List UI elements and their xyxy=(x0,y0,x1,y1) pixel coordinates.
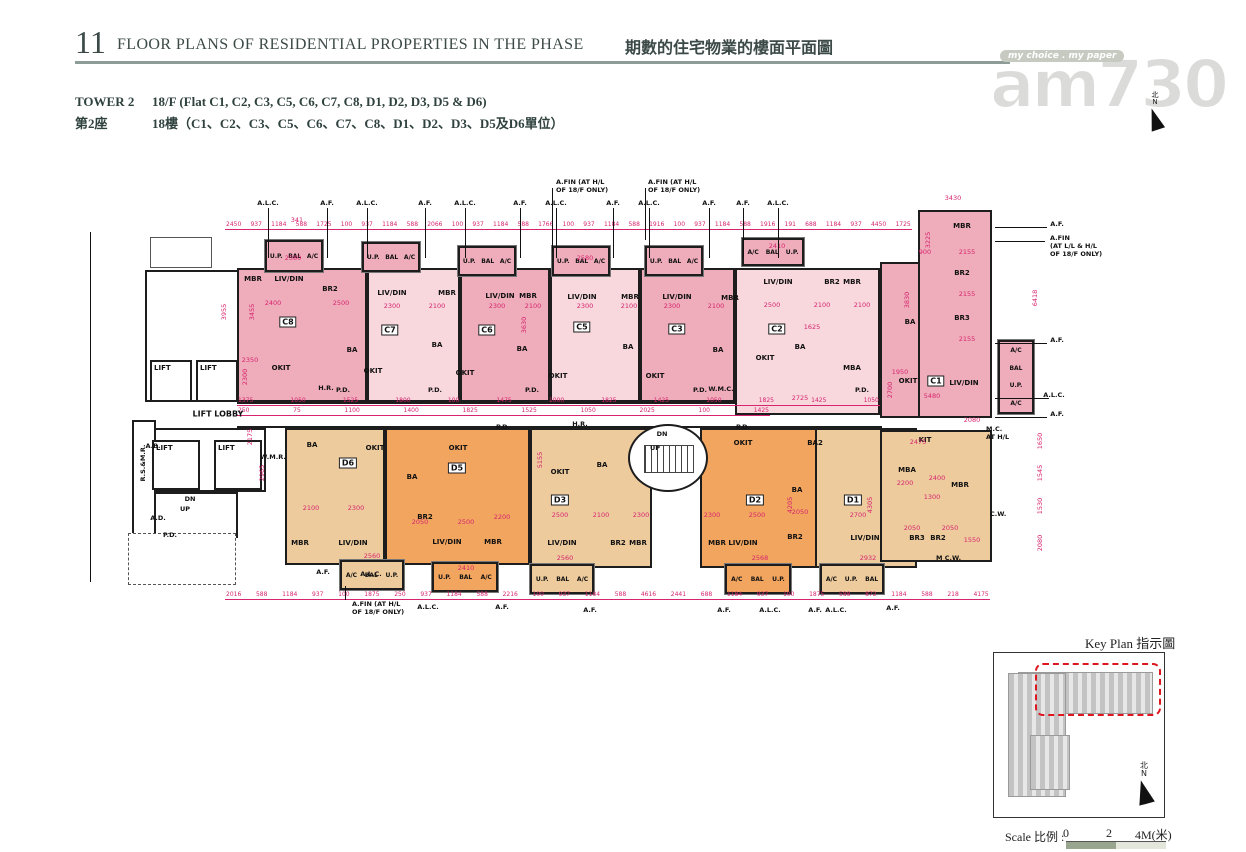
plan-label: R.S.&M.R. xyxy=(139,445,147,482)
leader-line xyxy=(345,586,346,600)
dimension-value: 588 xyxy=(838,591,851,599)
annotation-label: A.L.C. xyxy=(360,570,381,578)
room-label: BA xyxy=(597,461,608,469)
room-label: MBR xyxy=(951,481,969,489)
room-label: BR2 xyxy=(610,539,626,547)
dimension-value: 2050 xyxy=(904,524,921,532)
annotation-label: A.L.C. xyxy=(257,199,278,207)
dimension-value: 2300 xyxy=(241,369,249,386)
unit-badge-C1: C1 xyxy=(927,376,944,387)
room-label: BA xyxy=(347,346,358,354)
balcony-label: A/C xyxy=(687,258,698,265)
dimension-value: 4450 xyxy=(870,221,887,229)
balcony-box: U.P.BALA/C xyxy=(362,242,420,272)
balcony-label: U.P. xyxy=(845,576,858,583)
dimension-value: 1050 xyxy=(580,407,597,415)
dimension-value: 2560 xyxy=(557,554,574,562)
annotation-leader-line xyxy=(268,208,269,258)
room-label: BA2 xyxy=(807,439,823,447)
room-label: BR2 xyxy=(954,269,970,277)
dimension-value: 1425 xyxy=(753,407,770,415)
dimension-value: 2216 xyxy=(502,591,519,599)
dimension-value: 100 xyxy=(532,591,545,599)
plan-label: W.M.C. xyxy=(708,385,733,393)
room-label: OKIT xyxy=(734,439,753,447)
room-label: MBR xyxy=(953,222,971,230)
dimension-value: 1825 xyxy=(462,407,479,415)
callout-note: C.W. xyxy=(990,510,1006,518)
dimension-value: 341 xyxy=(291,216,303,224)
annotation-label: A.L.C. xyxy=(356,199,377,207)
dimension-value: 1825 xyxy=(600,397,617,405)
dimension-value: 2100 xyxy=(593,511,610,519)
lift-shaft: LIFT xyxy=(196,360,238,402)
plan-label: P.D. xyxy=(855,386,869,394)
room-label: LIV/DIN xyxy=(763,278,792,286)
plan-label: P.D. xyxy=(163,531,177,539)
plan-label: P.D. xyxy=(525,386,539,394)
leader-line xyxy=(995,241,1045,242)
plan-label: P.D. xyxy=(693,386,707,394)
unit-C8 xyxy=(237,268,367,402)
balcony-box: U.P.BALA/C xyxy=(645,246,703,276)
annotation-label: A.F. xyxy=(808,606,822,614)
dimension-value: 4616 xyxy=(640,591,657,599)
room-label: MBR xyxy=(708,539,726,547)
dimension-value: 1725 xyxy=(315,221,332,229)
plan-label: A.D. xyxy=(150,514,166,522)
dimension-value: 2441 xyxy=(670,591,687,599)
room-label: OKIT xyxy=(551,468,570,476)
dimension-value: 1875 xyxy=(808,591,825,599)
dimension-value: 100 xyxy=(562,221,575,229)
room-label: MBR xyxy=(621,293,639,301)
plan-label: P.D. xyxy=(336,386,350,394)
balcony-label: A/C xyxy=(826,576,837,583)
dimension-value: 1525 xyxy=(521,407,538,415)
dimension-value: 1475 xyxy=(495,397,512,405)
dimension-value: 2450 xyxy=(225,221,242,229)
dimension-value: 2080 xyxy=(1036,535,1044,552)
room-label: OKIT xyxy=(456,369,475,377)
balcony-box: A/CBALU.P.A/C xyxy=(998,340,1034,414)
dimension-value: 1530 xyxy=(1036,498,1044,515)
dimension-value: 937 xyxy=(756,591,769,599)
unit-badge-C6: C6 xyxy=(478,325,495,336)
dimension-value: 2300 xyxy=(704,511,721,519)
room-label: BR2 xyxy=(322,285,338,293)
dimension-value: 191 xyxy=(784,221,797,229)
balcony-label: A/C xyxy=(577,576,588,583)
dimension-value: 588 xyxy=(406,221,419,229)
dimension-value: 2350 xyxy=(242,356,259,364)
dimension-value: 3630 xyxy=(520,317,528,334)
dimension-value: 1650 xyxy=(1036,433,1044,450)
balcony-label: A/C xyxy=(481,574,492,581)
dimension-value: 3455 xyxy=(248,304,256,321)
leader-line xyxy=(645,188,646,240)
plan-label: P.D. xyxy=(496,423,510,431)
dimension-value: 4205 xyxy=(786,497,794,514)
dimension-value: 2200 xyxy=(494,513,511,521)
dimension-value: 2155 xyxy=(959,290,976,298)
room-label: MBR xyxy=(484,538,502,546)
dimension-value: 2175 xyxy=(246,429,254,446)
dimension-value: 2400 xyxy=(929,474,946,482)
room-label: MBR xyxy=(438,289,456,297)
dimension-value: 100 xyxy=(673,221,686,229)
annotation-label: A.F. xyxy=(316,568,330,576)
room-label: OKIT xyxy=(756,354,775,362)
annotation-label: A.F. xyxy=(513,199,527,207)
dimension-value: 937 xyxy=(849,221,862,229)
balcony-label: A/C xyxy=(1010,347,1021,354)
balcony-label: BAL xyxy=(751,576,764,583)
dimension-value: 250 xyxy=(393,591,406,599)
dimension-value: 2300 xyxy=(577,302,594,310)
leader-line xyxy=(995,343,1047,344)
stair-core xyxy=(628,424,708,492)
dimension-value: 937 xyxy=(693,221,706,229)
dimension-value: 2500 xyxy=(333,299,350,307)
room-label: MBR xyxy=(629,539,647,547)
dimension-value: 588 xyxy=(475,591,488,599)
dimension-value: 1184 xyxy=(714,221,731,229)
dimension-value: 2200 xyxy=(897,479,914,487)
dimension-value: 2700 xyxy=(850,511,867,519)
balcony-label: U.P. xyxy=(772,576,785,583)
balcony-label: U.P. xyxy=(385,572,398,579)
dimension-value: 75 xyxy=(292,407,302,415)
dimension-value: 688 xyxy=(700,591,713,599)
dimension-value: 1550 xyxy=(964,536,981,544)
dimension-value: 2155 xyxy=(959,248,976,256)
key-plan-footprint xyxy=(1030,735,1070,790)
annotation-label: A.F. xyxy=(606,199,620,207)
dimension-value: 100 xyxy=(340,221,353,229)
room-label: MBR xyxy=(843,278,861,286)
balcony-label: A/C xyxy=(594,258,605,265)
plan-label: A.B. xyxy=(145,442,160,450)
callout-note: M C.W. xyxy=(936,554,961,562)
leader-line xyxy=(995,417,1047,418)
plan-label: LIFT LOBBY xyxy=(193,410,244,419)
room-label: MBR xyxy=(244,275,262,283)
room-label: LIV/DIN xyxy=(662,293,691,301)
dimension-value: 2568 xyxy=(752,554,769,562)
dimension-value: 2025 xyxy=(639,407,656,415)
dimension-value: 100 xyxy=(337,591,350,599)
brochure-page: 11 FLOOR PLANS OF RESIDENTIAL PROPERTIES… xyxy=(0,0,1246,852)
unit-C6 xyxy=(460,268,550,402)
dimension-value: 4175 xyxy=(972,591,989,599)
scale-bar-segment-light xyxy=(1116,842,1166,849)
room-label: OKIT xyxy=(899,377,918,385)
room-label: LIV/DIN xyxy=(377,289,406,297)
room-label: OKIT xyxy=(366,444,385,452)
dimension-value: 937 xyxy=(558,591,571,599)
annotation-label: A.L.C. xyxy=(545,199,566,207)
dimension-value: 218 xyxy=(946,591,959,599)
dimension-value: 1100 xyxy=(344,407,361,415)
dimension-value: 937 xyxy=(582,221,595,229)
annotation-label: A.F. xyxy=(495,603,509,611)
plan-label: DN xyxy=(185,495,196,503)
annotation-label: A.L.C. xyxy=(767,199,788,207)
annotation-label: A.L.C. xyxy=(825,606,846,614)
scale-bar-segment-dark xyxy=(1066,842,1116,849)
balcony-label: U.P. xyxy=(536,576,549,583)
annotation-label: A.L.C. xyxy=(417,603,438,611)
dimension-value: 5480 xyxy=(924,392,941,400)
dimension-chain: 2016588118493710018752509371184588221610… xyxy=(225,590,990,600)
dimension-value: 937 xyxy=(311,591,324,599)
annotation-label: A.F. xyxy=(583,606,597,614)
dimension-value: 1300 xyxy=(924,493,941,501)
room-label: LIV/DIN xyxy=(850,534,879,542)
room-label: LIV/DIN xyxy=(949,379,978,387)
dimension-value: 588 xyxy=(517,221,530,229)
balcony-label: U.P. xyxy=(557,258,570,265)
callout-note: A.FIN (AT H/L OF 18/F ONLY) xyxy=(352,600,404,616)
dimension-value: 1425 xyxy=(653,397,670,405)
dimension-value: 2500 xyxy=(749,511,766,519)
callout-note: A.FIN (AT H/L OF 18/F ONLY) xyxy=(556,178,608,194)
dimension-value: 1050 xyxy=(705,397,722,405)
room-label: LIV/DIN xyxy=(338,539,367,547)
dimension-value: 2410 xyxy=(769,242,786,250)
dimension-value: 2932 xyxy=(860,554,877,562)
annotation-label: A.F. xyxy=(418,199,432,207)
dimension-value: 1184 xyxy=(726,591,743,599)
dimension-value: 2100 xyxy=(814,301,831,309)
dimension-value: 2400 xyxy=(265,299,282,307)
dimension-value: 1916 xyxy=(648,221,665,229)
dimension-value: 1375 xyxy=(237,397,254,405)
dimension-value: 2580 xyxy=(285,254,302,262)
dimension-value: 588 xyxy=(255,591,268,599)
unit-badge-C2: C2 xyxy=(768,324,785,335)
room-label: BA xyxy=(517,345,528,353)
dimension-value: 100 xyxy=(451,221,464,229)
annotation-label: A.L.C. xyxy=(638,199,659,207)
lift-shaft: LIFT xyxy=(214,440,262,490)
unit-badge-C3: C3 xyxy=(668,324,685,335)
plan-label: DN xyxy=(657,430,668,438)
callout-note: A.FIN (AT L/L & H/L OF 18/F ONLY) xyxy=(1050,234,1102,258)
unit-badge-D2: D2 xyxy=(746,495,764,506)
annotation-label: A.F. xyxy=(886,604,900,612)
annotation-label: A.L.C. xyxy=(1043,391,1064,399)
room-label: BA xyxy=(307,441,318,449)
room-label: OKIT xyxy=(364,367,383,375)
annotation-leader-line xyxy=(613,208,614,258)
unit-badge-D6: D6 xyxy=(339,458,357,469)
balcony-label: BAL xyxy=(1009,365,1022,372)
annotation-label: A.F. xyxy=(1050,220,1064,228)
dimension-value: 4305 xyxy=(866,497,874,514)
room-label: BR3 xyxy=(909,534,925,542)
dimension-value: 588 xyxy=(614,591,627,599)
plan-label: H.R. xyxy=(318,384,334,392)
balcony-label: BAL xyxy=(865,576,878,583)
room-label: BA xyxy=(432,341,443,349)
balcony-label: U.P. xyxy=(367,254,380,261)
room-label: LIV/DIN xyxy=(274,275,303,283)
dimension-value: 1184 xyxy=(492,221,509,229)
scale-tick-0: 0 xyxy=(1063,826,1069,841)
balcony-label: BAL xyxy=(668,258,681,265)
dimension-value: 3225 xyxy=(924,232,932,249)
dimension-value: 2300 xyxy=(384,302,401,310)
lift-label: LIFT xyxy=(216,442,235,452)
dimension-value: 2050 xyxy=(792,508,809,516)
dimension-value: 1875 xyxy=(363,591,380,599)
room-label: BA xyxy=(795,343,806,351)
room-label: OKIT xyxy=(449,444,468,452)
annotation-label: A.L.C. xyxy=(759,606,780,614)
annotation-leader-line xyxy=(709,208,710,258)
lift-label: LIFT xyxy=(152,362,171,372)
scale-bar xyxy=(1066,841,1166,849)
dimension-value: 3430 xyxy=(945,194,962,202)
annotation-leader-line xyxy=(465,208,466,258)
room-label: MBR xyxy=(721,294,739,302)
dimension-value: 1425 xyxy=(810,397,827,405)
key-plan-compass: 北 N xyxy=(1136,762,1152,804)
room-label: BR2 xyxy=(930,534,946,542)
dimension-value: 2155 xyxy=(959,335,976,343)
dimension-value: 2100 xyxy=(525,302,542,310)
room-label: LIV/DIN xyxy=(547,539,576,547)
annotation-leader-line xyxy=(649,208,650,258)
annotation-leader-line xyxy=(327,208,328,258)
dimension-value: 2100 xyxy=(429,302,446,310)
dimension-value: 2500 xyxy=(458,518,475,526)
room-label: OKIT xyxy=(646,372,665,380)
unit-badge-C8: C8 xyxy=(279,317,296,328)
dimension-value: 1050 xyxy=(863,397,880,405)
dimension-value: 2965 xyxy=(258,465,266,482)
annotation-label: A.F. xyxy=(320,199,334,207)
dimension-value: 1184 xyxy=(270,221,287,229)
dimension-chain: 2450937118458817251009371184588206610093… xyxy=(225,220,912,230)
dimension-value: 2066 xyxy=(426,221,443,229)
room-label: OKIT xyxy=(272,364,291,372)
annotation-leader-line xyxy=(778,208,779,258)
structure-outline xyxy=(128,533,236,585)
dimension-value: 1184 xyxy=(603,221,620,229)
room-label: OKIT xyxy=(549,372,568,380)
dimension-value: 2500 xyxy=(552,511,569,519)
dimension-value: 588 xyxy=(627,221,640,229)
annotation-label: A.F. xyxy=(717,606,731,614)
room-label: MBR xyxy=(519,292,537,300)
dimension-value: 3955 xyxy=(220,304,228,321)
dimension-value: 2580 xyxy=(577,254,594,262)
dimension-value: 2100 xyxy=(708,302,725,310)
dimension-value: 1000 xyxy=(548,397,565,405)
balcony-label: U.P. xyxy=(1010,382,1023,389)
balcony-label: A/C xyxy=(1010,400,1021,407)
dimension-value: 1800 xyxy=(394,397,411,405)
balcony-label: U.P. xyxy=(438,574,451,581)
balcony-label: A/C xyxy=(404,254,415,261)
unit-badge-C5: C5 xyxy=(573,322,590,333)
balcony-label: U.P. xyxy=(786,249,799,256)
dimension-value: 3830 xyxy=(903,292,911,309)
dimension-value: 1545 xyxy=(1036,465,1044,482)
room-label: MBA xyxy=(843,364,861,372)
lift-shaft: LIFT xyxy=(150,360,192,402)
plan-label: H.R. xyxy=(572,420,588,428)
unit-badge-D3: D3 xyxy=(551,495,569,506)
dimension-value: 5155 xyxy=(536,452,544,469)
balcony-label: BAL xyxy=(459,574,472,581)
leader-line xyxy=(995,227,1047,228)
dimension-value: 1184 xyxy=(445,591,462,599)
dimension-value: 100 xyxy=(782,591,795,599)
dimension-value: 2300 xyxy=(633,511,650,519)
unit-badge-C7: C7 xyxy=(381,325,398,336)
annotation-leader-line xyxy=(520,208,521,258)
leader-line xyxy=(90,232,91,582)
room-label: LIV/DIN xyxy=(432,538,461,546)
dimension-value: 937 xyxy=(419,591,432,599)
dimension-value: 6418 xyxy=(1031,290,1039,307)
plan-label: P.D. xyxy=(428,386,442,394)
dimension-value: 1184 xyxy=(381,221,398,229)
balcony-label: A/C xyxy=(500,258,511,265)
room-label: LIV/DIN xyxy=(567,293,596,301)
balcony-label: A/C xyxy=(731,576,742,583)
lift-label: LIFT xyxy=(198,362,217,372)
dimension-value: 1184 xyxy=(825,221,842,229)
annotation-label: A.F. xyxy=(1050,410,1064,418)
room-label: MBA xyxy=(898,466,916,474)
dimension-value: 1184 xyxy=(281,591,298,599)
room-label: BA xyxy=(905,318,916,326)
dimension-value: 2100 xyxy=(621,302,638,310)
dimension-value: 1184 xyxy=(890,591,907,599)
dimension-value: 2475 xyxy=(910,438,927,446)
dimension-value: 1184 xyxy=(584,591,601,599)
annotation-leader-line xyxy=(556,208,557,258)
plan-label: UP xyxy=(180,505,190,513)
annotation-label: A.F. xyxy=(1050,336,1064,344)
balcony-label: U.P. xyxy=(650,258,663,265)
balcony-label: BAL xyxy=(385,254,398,261)
room-label: BR2 xyxy=(824,278,840,286)
room-label: BA xyxy=(623,343,634,351)
plan-label: P.D. xyxy=(736,423,750,431)
dimension-value: 100 xyxy=(447,397,460,405)
annotation-leader-line xyxy=(425,208,426,258)
balcony-label: A/C xyxy=(747,249,758,256)
dimension-value: 1400 xyxy=(403,407,420,415)
dimension-value: 2560 xyxy=(364,552,381,560)
dimension-value: 2410 xyxy=(458,564,475,572)
plan-label: UP xyxy=(650,444,660,452)
room-label: BR2 xyxy=(787,533,803,541)
unit-badge-D1: D1 xyxy=(844,495,862,506)
dimension-value: 2016 xyxy=(225,591,242,599)
dimension-chain: 1375105015251800100147510001825142510501… xyxy=(237,396,880,406)
dimension-value: 1050 xyxy=(289,397,306,405)
balcony-label: U.P. xyxy=(270,253,283,260)
balcony-label: BAL xyxy=(556,576,569,583)
dimension-value: 1725 xyxy=(894,221,911,229)
